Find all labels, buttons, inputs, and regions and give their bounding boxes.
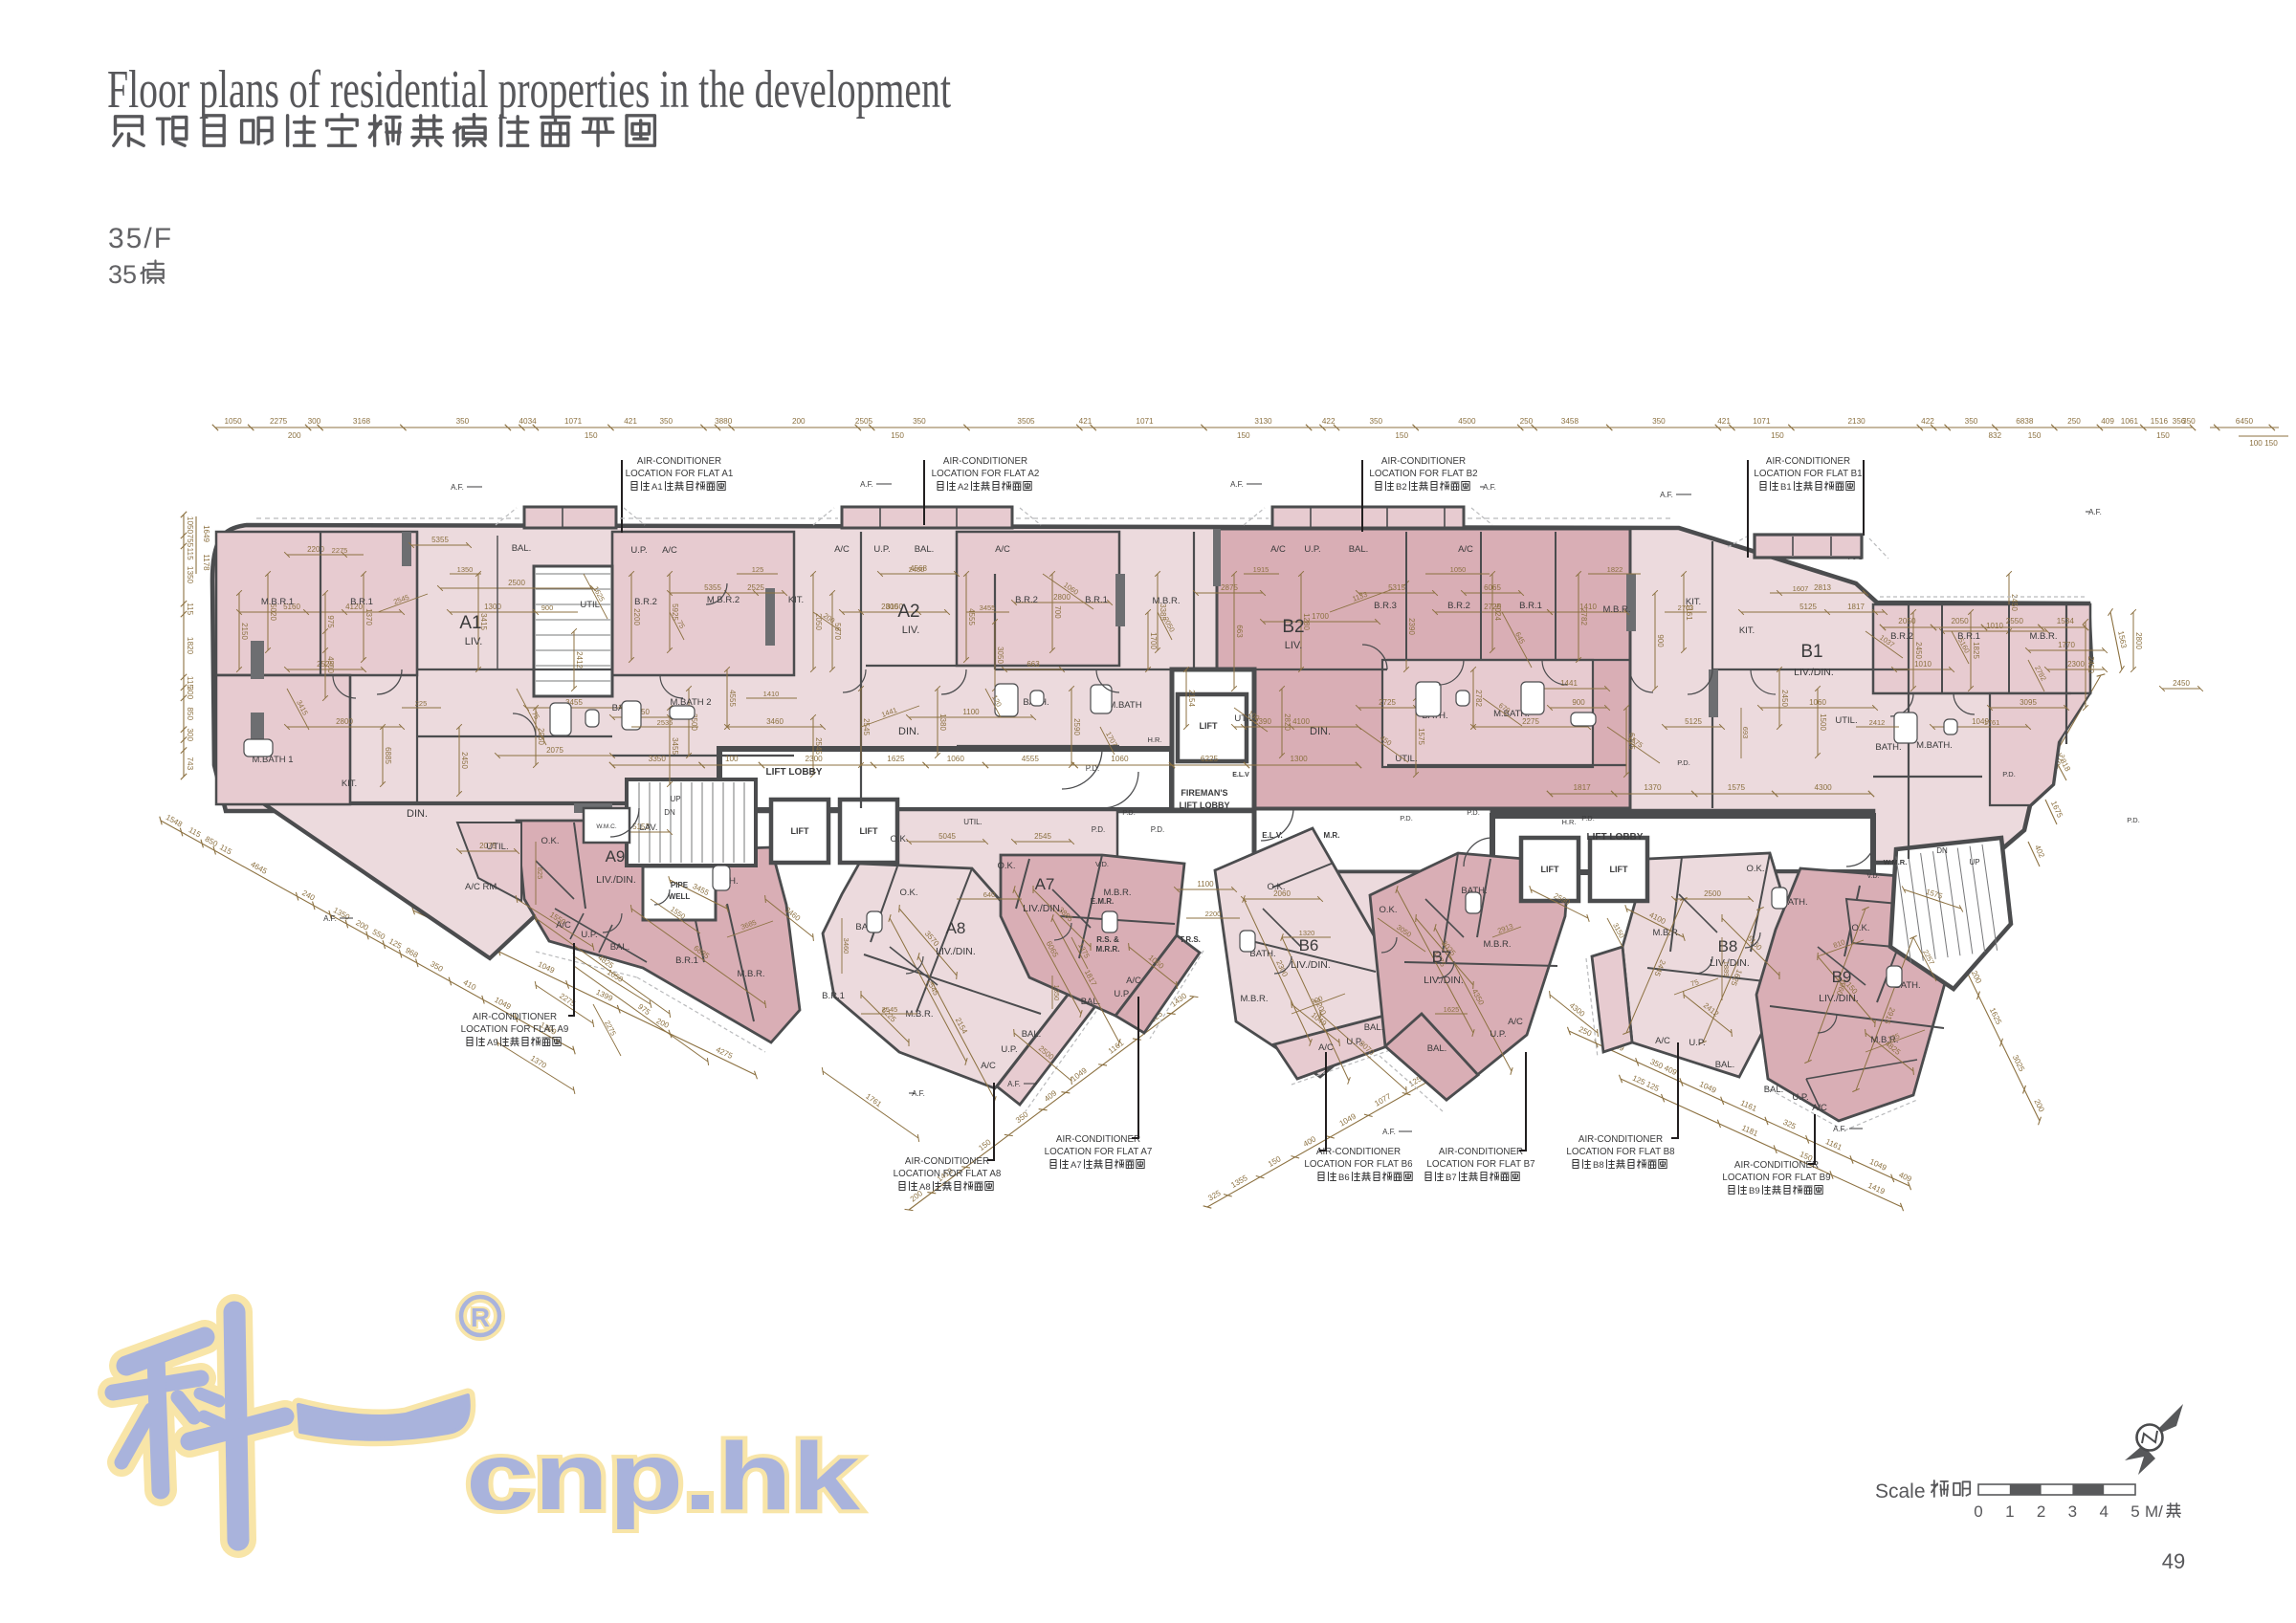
svg-text:1049: 1049	[493, 996, 513, 1012]
svg-text:M.B.R.: M.B.R.	[1652, 928, 1680, 938]
svg-text:E.L.V: E.L.V	[1232, 772, 1249, 779]
svg-text:1071: 1071	[564, 417, 583, 426]
svg-text:2300: 2300	[805, 755, 823, 763]
svg-text:H.R.: H.R.	[1148, 735, 1162, 744]
svg-text:832: 832	[1988, 431, 2001, 440]
svg-text:1370: 1370	[364, 608, 373, 625]
svg-text:BAL.: BAL.	[1764, 1085, 1784, 1095]
svg-text:2130: 2130	[1847, 417, 1865, 426]
svg-text:2535: 2535	[657, 718, 673, 727]
svg-text:LOCATION FOR FLAT B7: LOCATION FOR FLAT B7	[1426, 1159, 1534, 1170]
svg-text:A.F.: A.F.	[451, 483, 464, 492]
svg-text:2450: 2450	[909, 565, 925, 574]
svg-text:2450: 2450	[2173, 679, 2190, 688]
svg-text:BAL.: BAL.	[915, 544, 935, 555]
svg-text:2450: 2450	[1780, 690, 1789, 707]
svg-text:2050: 2050	[537, 728, 545, 745]
svg-text:200: 200	[792, 417, 806, 426]
svg-text:150: 150	[977, 1137, 993, 1152]
svg-text:BAL.: BAL.	[1427, 1043, 1447, 1054]
svg-text:4555: 4555	[1022, 755, 1040, 763]
svg-text:1817: 1817	[1573, 783, 1591, 792]
svg-text:B.R.2: B.R.2	[1447, 601, 1470, 611]
svg-text:A/C: A/C	[1458, 544, 1473, 555]
svg-text:115: 115	[186, 548, 194, 560]
svg-text:DIN.: DIN.	[407, 808, 428, 820]
svg-text:1820: 1820	[186, 637, 194, 655]
svg-text:1161: 1161	[1107, 1039, 1126, 1056]
svg-text:350: 350	[1652, 417, 1666, 426]
svg-text:6225: 6225	[1201, 755, 1219, 763]
svg-text:M.B.R.: M.B.R.	[1483, 939, 1511, 950]
svg-text:2505: 2505	[855, 417, 873, 426]
svg-text:AIR-CONDITIONER: AIR-CONDITIONER	[473, 1012, 557, 1022]
svg-text:LIV.: LIV.	[1285, 640, 1303, 651]
svg-text:225: 225	[415, 699, 428, 708]
svg-text:2545: 2545	[814, 737, 823, 755]
svg-text:LOCATION FOR FLAT A9: LOCATION FOR FLAT A9	[461, 1024, 569, 1035]
svg-text:A/C: A/C	[995, 544, 1010, 555]
svg-text:2800: 2800	[1053, 593, 1071, 602]
svg-text:P.D.: P.D.	[1092, 825, 1106, 834]
svg-text:150: 150	[1237, 431, 1250, 440]
svg-text:PIPE: PIPE	[671, 881, 689, 889]
svg-text:U.P.: U.P.	[1792, 1092, 1808, 1103]
svg-text:LIFT: LIFT	[860, 826, 878, 836]
svg-text:1770: 1770	[2058, 641, 2075, 649]
svg-text:5355: 5355	[431, 536, 449, 544]
svg-text:2450: 2450	[2086, 656, 2095, 673]
svg-text:A.F.: A.F.	[1382, 1128, 1396, 1136]
svg-text:2875: 2875	[1221, 583, 1238, 592]
svg-text:BATH.: BATH.	[1875, 742, 1901, 753]
svg-text:A9: A9	[487, 1038, 498, 1048]
svg-text:B.R.1: B.R.1	[675, 955, 698, 966]
svg-text:LIFT LOBBY: LIFT LOBBY	[1587, 832, 1644, 843]
svg-text:BAL.: BAL.	[1022, 1029, 1042, 1040]
svg-text:O.K.: O.K.	[899, 888, 917, 898]
svg-text:2500: 2500	[508, 579, 525, 587]
svg-text:M.B.R.: M.B.R.	[1602, 604, 1630, 615]
svg-text:4500: 4500	[1458, 417, 1476, 426]
svg-text:B.R.2: B.R.2	[1015, 595, 1038, 605]
svg-text:1575: 1575	[1728, 783, 1746, 792]
svg-text:900: 900	[541, 603, 554, 612]
svg-text:200: 200	[354, 918, 370, 932]
svg-text:P.D.: P.D.	[2002, 770, 2016, 779]
svg-text:150: 150	[891, 431, 904, 440]
svg-text:R: R	[471, 1303, 490, 1332]
svg-text:M.BATH: M.BATH	[1108, 700, 1141, 711]
svg-text:LIV.: LIV.	[902, 625, 920, 636]
svg-text:DN: DN	[664, 808, 675, 817]
svg-text:5: 5	[2130, 1502, 2139, 1521]
svg-text:DIN.: DIN.	[1310, 726, 1331, 737]
svg-text:LAV.: LAV.	[639, 822, 657, 833]
svg-text:35: 35	[108, 260, 137, 289]
svg-text:M/: M/	[2145, 1502, 2163, 1521]
svg-text:P.D.: P.D.	[1581, 814, 1595, 822]
svg-text:LIFT: LIFT	[1610, 865, 1628, 874]
svg-text:AIR-CONDITIONER: AIR-CONDITIONER	[637, 456, 721, 467]
svg-text:150: 150	[1395, 431, 1408, 440]
svg-text:1410: 1410	[763, 690, 780, 698]
svg-text:B6: B6	[1338, 1173, 1350, 1183]
svg-text:1161: 1161	[1739, 1099, 1758, 1114]
svg-text:6838: 6838	[2016, 417, 2034, 426]
svg-text:LIV./DIN.: LIV./DIN.	[936, 946, 976, 957]
svg-text:1049: 1049	[1338, 1111, 1358, 1128]
svg-text:2200: 2200	[1205, 910, 1222, 918]
svg-text:663: 663	[1235, 625, 1244, 638]
svg-text:1100: 1100	[962, 708, 980, 716]
svg-text:M.R.: M.R.	[1324, 831, 1340, 840]
svg-text:LOCATION FOR FLAT A2: LOCATION FOR FLAT A2	[932, 469, 1040, 479]
svg-text:A/C: A/C	[1508, 1017, 1523, 1027]
svg-text:1370: 1370	[1644, 783, 1662, 792]
svg-text:A.F.: A.F.	[860, 480, 873, 489]
svg-text:1889: 1889	[1722, 961, 1731, 977]
svg-text:150: 150	[2028, 431, 2042, 440]
svg-text:4555: 4555	[728, 690, 737, 707]
svg-text:325: 325	[1206, 1189, 1223, 1203]
svg-text:550: 550	[371, 928, 387, 942]
svg-text:850: 850	[204, 835, 220, 849]
svg-text:1161: 1161	[1824, 1137, 1843, 1152]
svg-text:V.D.: V.D.	[1095, 860, 1109, 868]
svg-text:2800: 2800	[336, 717, 353, 726]
svg-text:1300: 1300	[484, 603, 501, 611]
svg-text:M.B.R.: M.B.R.	[737, 969, 764, 979]
svg-text:2390: 2390	[1407, 618, 1416, 635]
svg-text:150: 150	[2156, 431, 2170, 440]
svg-text:700: 700	[1053, 605, 1062, 619]
svg-text:O.K.: O.K.	[1267, 882, 1285, 892]
svg-text:100 150: 100 150	[2249, 439, 2278, 448]
svg-text:A/C: A/C	[1655, 1036, 1670, 1046]
svg-text:U.P.: U.P.	[1689, 1038, 1705, 1048]
svg-text:BAL.: BAL.	[1715, 1060, 1735, 1070]
svg-text:3455: 3455	[671, 737, 679, 755]
svg-text:1419: 1419	[1866, 1181, 1887, 1196]
svg-text:U.P.: U.P.	[873, 544, 890, 555]
svg-text:A.F.: A.F.	[2088, 508, 2102, 516]
svg-text:O.K.: O.K.	[997, 861, 1015, 871]
svg-text:B6: B6	[1299, 936, 1319, 954]
svg-text:2782: 2782	[1474, 690, 1483, 707]
svg-text:4034: 4034	[519, 417, 537, 426]
svg-text:1300: 1300	[1290, 755, 1308, 763]
svg-text:1410: 1410	[1579, 603, 1597, 611]
svg-text:A/C: A/C	[1318, 1042, 1334, 1053]
svg-text:BAL.: BAL.	[1349, 544, 1369, 555]
svg-text:100: 100	[725, 755, 739, 763]
svg-text:1607: 1607	[1793, 584, 1809, 593]
svg-text:421: 421	[1717, 417, 1731, 426]
svg-text:350: 350	[2182, 417, 2196, 426]
svg-text:M.BATH.: M.BATH.	[1916, 740, 1953, 751]
svg-text:350: 350	[429, 959, 445, 974]
svg-text:LOCATION FOR FLAT B2: LOCATION FOR FLAT B2	[1369, 469, 1477, 479]
svg-text:421: 421	[624, 417, 637, 426]
svg-text:B.R.1: B.R.1	[350, 597, 373, 607]
svg-text:A1: A1	[459, 613, 481, 633]
svg-text:FIREMAN'S: FIREMAN'S	[1181, 788, 1227, 798]
svg-text:240: 240	[300, 888, 317, 903]
svg-text:1049: 1049	[1070, 1065, 1089, 1083]
svg-text:3168: 3168	[353, 417, 371, 426]
svg-text:A.F.: A.F.	[1483, 483, 1496, 492]
svg-text:350: 350	[913, 417, 926, 426]
svg-text:975: 975	[326, 615, 335, 628]
svg-text:1355: 1355	[1229, 1173, 1249, 1190]
svg-text:B.R.2: B.R.2	[634, 597, 657, 607]
svg-text:1: 1	[2005, 1502, 2014, 1521]
svg-text:1049: 1049	[1868, 1157, 1888, 1173]
svg-text:825: 825	[536, 867, 544, 880]
svg-text:900: 900	[1572, 698, 1585, 707]
svg-text:A2: A2	[958, 482, 969, 493]
svg-text:422: 422	[1921, 417, 1934, 426]
svg-text:1399: 1399	[595, 988, 615, 1003]
svg-text:KIT.: KIT.	[342, 779, 357, 789]
svg-text:UTIL.: UTIL.	[963, 818, 982, 826]
svg-text:WELL: WELL	[669, 892, 691, 901]
svg-text:4300: 4300	[1814, 783, 1832, 792]
svg-text:5125: 5125	[1685, 717, 1702, 726]
svg-text:A.F.: A.F.	[1660, 491, 1673, 499]
svg-text:A7: A7	[1035, 875, 1055, 893]
svg-text:350: 350	[1014, 1109, 1030, 1125]
svg-text:2450: 2450	[1914, 642, 1923, 659]
svg-text:1500: 1500	[1819, 713, 1827, 731]
svg-text:5045: 5045	[938, 832, 956, 841]
svg-text:2: 2	[2037, 1502, 2045, 1521]
svg-text:M.B.R.: M.B.R.	[905, 1009, 933, 1020]
svg-text:0: 0	[1974, 1502, 1982, 1521]
svg-text:AIR-CONDITIONER: AIR-CONDITIONER	[1056, 1134, 1140, 1145]
svg-text:1350: 1350	[186, 566, 194, 584]
svg-text:1350: 1350	[1052, 985, 1061, 1001]
svg-text:1625: 1625	[887, 755, 905, 763]
svg-text:6065: 6065	[1484, 583, 1501, 592]
svg-text:LIFT: LIFT	[791, 826, 809, 836]
svg-text:350: 350	[659, 417, 673, 426]
svg-text:1817: 1817	[1847, 603, 1865, 611]
svg-text:2525: 2525	[747, 583, 764, 592]
svg-text:1049: 1049	[1698, 1080, 1718, 1095]
svg-text:O.K.: O.K.	[890, 834, 908, 844]
svg-text:4100: 4100	[1292, 717, 1310, 726]
svg-text:2725: 2725	[1379, 698, 1396, 707]
svg-text:1822: 1822	[1607, 565, 1623, 574]
svg-text:3505: 3505	[1017, 417, 1035, 426]
svg-text:V.D.: V.D.	[1867, 873, 1880, 880]
svg-text:AIR-CONDITIONER: AIR-CONDITIONER	[1734, 1160, 1819, 1171]
svg-text:A1: A1	[651, 482, 663, 493]
svg-text:A9: A9	[606, 847, 626, 866]
svg-text:U.P.: U.P.	[1346, 1037, 1362, 1047]
svg-text:1060: 1060	[1111, 755, 1129, 763]
svg-text:125: 125	[387, 936, 404, 951]
svg-text:150: 150	[1267, 1154, 1283, 1169]
svg-text:1061: 1061	[2121, 417, 2139, 426]
svg-text:M.B.R.: M.B.R.	[2029, 631, 2057, 642]
svg-text:1010: 1010	[1914, 660, 1932, 669]
svg-text:P.D.: P.D.	[1122, 808, 1136, 817]
svg-text:1077: 1077	[1373, 1092, 1393, 1108]
svg-text:2075: 2075	[546, 746, 563, 755]
svg-text:BAL.: BAL.	[1364, 1022, 1384, 1033]
svg-text:O.K.: O.K.	[1746, 864, 1764, 874]
svg-text:BAL.: BAL.	[1081, 997, 1101, 1007]
svg-text:U.P.: U.P.	[1490, 1029, 1506, 1040]
svg-text:E.M.R.: E.M.R.	[1091, 897, 1114, 906]
svg-text:LIFT LOBBY: LIFT LOBBY	[766, 767, 823, 778]
svg-text:2813: 2813	[1814, 583, 1831, 592]
svg-text:250: 250	[2067, 417, 2081, 426]
svg-text:O.K.: O.K.	[1851, 923, 1869, 933]
svg-text:B8: B8	[1718, 937, 1738, 955]
svg-text:AIR-CONDITIONER: AIR-CONDITIONER	[1578, 1134, 1663, 1145]
svg-text:P.D.: P.D.	[2127, 816, 2140, 824]
svg-text:KIT.: KIT.	[788, 595, 804, 605]
svg-text:LOCATION FOR FLAT A8: LOCATION FOR FLAT A8	[894, 1169, 1002, 1179]
svg-text:3095: 3095	[2020, 698, 2037, 707]
svg-text:2550: 2550	[2006, 617, 2024, 625]
svg-text:2200: 2200	[307, 545, 324, 554]
svg-text:125: 125	[752, 565, 764, 574]
svg-text:A.F.: A.F.	[1007, 1080, 1021, 1088]
svg-text:LIV./DIN.: LIV./DIN.	[1424, 975, 1464, 986]
svg-text:1915: 1915	[1253, 565, 1269, 574]
svg-text:1380: 1380	[938, 713, 947, 731]
svg-text:A7: A7	[1071, 1160, 1082, 1171]
svg-text:350: 350	[1965, 417, 1978, 426]
svg-text:3880: 3880	[715, 417, 733, 426]
svg-text:2300: 2300	[2067, 660, 2085, 669]
svg-text:P.D.: P.D.	[1467, 808, 1480, 817]
svg-text:UTIL.: UTIL.	[486, 842, 508, 852]
svg-text:R.S. &: R.S. &	[1096, 935, 1119, 944]
svg-text:6885: 6885	[384, 747, 392, 764]
svg-text:2525: 2525	[317, 660, 334, 669]
svg-text:AIR-CONDITIONER: AIR-CONDITIONER	[905, 1156, 989, 1167]
svg-text:T.R.S.: T.R.S.	[1180, 935, 1201, 944]
svg-text:2412: 2412	[1869, 718, 1886, 727]
svg-text:409: 409	[1043, 1088, 1059, 1104]
svg-text:2412: 2412	[575, 651, 584, 669]
svg-text:1534: 1534	[2057, 617, 2075, 625]
svg-text:B7: B7	[1446, 1173, 1457, 1183]
svg-text:2545: 2545	[1034, 832, 1051, 841]
svg-text:A/C: A/C	[556, 920, 571, 931]
svg-text:M.R.R.: M.R.R.	[1096, 945, 1120, 954]
svg-text:A.F.: A.F.	[1833, 1125, 1846, 1133]
svg-text:B1: B1	[1780, 482, 1792, 493]
svg-text:B2: B2	[1282, 617, 1304, 637]
svg-text:A8: A8	[946, 919, 966, 937]
svg-text:1060: 1060	[947, 755, 965, 763]
svg-text:6450: 6450	[2236, 417, 2254, 426]
svg-text:B9: B9	[1749, 1186, 1760, 1196]
svg-text:350: 350	[456, 417, 470, 426]
svg-text:3: 3	[2068, 1502, 2077, 1521]
svg-text:2500: 2500	[1704, 889, 1721, 898]
svg-text:2545: 2545	[882, 1005, 898, 1014]
svg-text:DIN.: DIN.	[898, 726, 919, 737]
svg-text:LIFT LOBBY: LIFT LOBBY	[1180, 801, 1230, 810]
svg-text:LIV./DIN.: LIV./DIN.	[1291, 959, 1331, 971]
svg-text:2050: 2050	[1951, 617, 1969, 625]
svg-text:2275: 2275	[603, 1019, 618, 1037]
svg-text:115: 115	[218, 843, 233, 856]
svg-text:2820: 2820	[1283, 713, 1291, 731]
svg-text:1320: 1320	[1299, 929, 1315, 937]
svg-text:200: 200	[288, 431, 301, 440]
svg-text:4555: 4555	[967, 608, 976, 625]
svg-text:cnp.hk: cnp.hk	[466, 1423, 860, 1530]
svg-text:900: 900	[1656, 634, 1665, 647]
svg-text:300: 300	[186, 728, 194, 741]
svg-text:2200: 2200	[632, 608, 641, 625]
svg-text:5315: 5315	[1388, 583, 1405, 592]
svg-text:5024: 5024	[1493, 603, 1502, 621]
svg-text:150: 150	[585, 431, 598, 440]
svg-text:1181: 1181	[1740, 1124, 1759, 1139]
svg-text:AIR-CONDITIONER: AIR-CONDITIONER	[1439, 1147, 1523, 1157]
svg-text:LIFT: LIFT	[1541, 865, 1559, 874]
svg-text:W.M.R.: W.M.R.	[1884, 858, 1908, 866]
svg-text:AIR-CONDITIONER: AIR-CONDITIONER	[943, 456, 1027, 467]
svg-text:5125: 5125	[1799, 603, 1817, 611]
svg-text:1050: 1050	[186, 516, 194, 535]
svg-text:A2: A2	[897, 602, 919, 622]
svg-text:H.R.: H.R.	[1562, 818, 1577, 826]
svg-text:W.M.C.: W.M.C.	[596, 823, 616, 830]
svg-text:1071: 1071	[1753, 417, 1771, 426]
svg-text:LOCATION FOR FLAT B9: LOCATION FOR FLAT B9	[1722, 1173, 1830, 1183]
svg-text:B7: B7	[1432, 948, 1452, 966]
svg-text:1548: 1548	[165, 813, 185, 829]
svg-text:2450: 2450	[460, 752, 469, 769]
svg-text:AIR-CONDITIONER: AIR-CONDITIONER	[1381, 456, 1466, 467]
svg-text:LIFT: LIFT	[1200, 721, 1218, 731]
svg-text:A/C RM.: A/C RM.	[465, 882, 499, 892]
svg-text:BAL.: BAL.	[610, 942, 630, 953]
svg-text:2275: 2275	[270, 417, 288, 426]
svg-text:1178: 1178	[202, 554, 210, 571]
svg-text:U.P.: U.P.	[1114, 989, 1130, 999]
svg-text:1050: 1050	[1450, 565, 1467, 574]
svg-text:AIR-CONDITIONER: AIR-CONDITIONER	[1766, 456, 1850, 467]
svg-text:49: 49	[2162, 1549, 2185, 1573]
svg-text:4645: 4645	[249, 860, 269, 876]
svg-text:4: 4	[2099, 1502, 2108, 1521]
svg-text:U.P.: U.P.	[581, 930, 597, 940]
svg-text:1563: 1563	[2116, 630, 2128, 649]
svg-text:A/C: A/C	[981, 1061, 996, 1071]
svg-text:A/C: A/C	[662, 545, 677, 556]
svg-text:LIV./DIN.: LIV./DIN.	[1794, 667, 1834, 678]
svg-text:818: 818	[2058, 757, 2072, 774]
svg-text:1575: 1575	[1417, 728, 1425, 745]
svg-text:3130: 3130	[1254, 417, 1272, 426]
svg-text:1625: 1625	[1444, 1005, 1460, 1014]
svg-text:5925: 5925	[671, 603, 679, 621]
svg-text:409: 409	[2101, 417, 2114, 426]
svg-text:A/C: A/C	[1270, 544, 1286, 555]
